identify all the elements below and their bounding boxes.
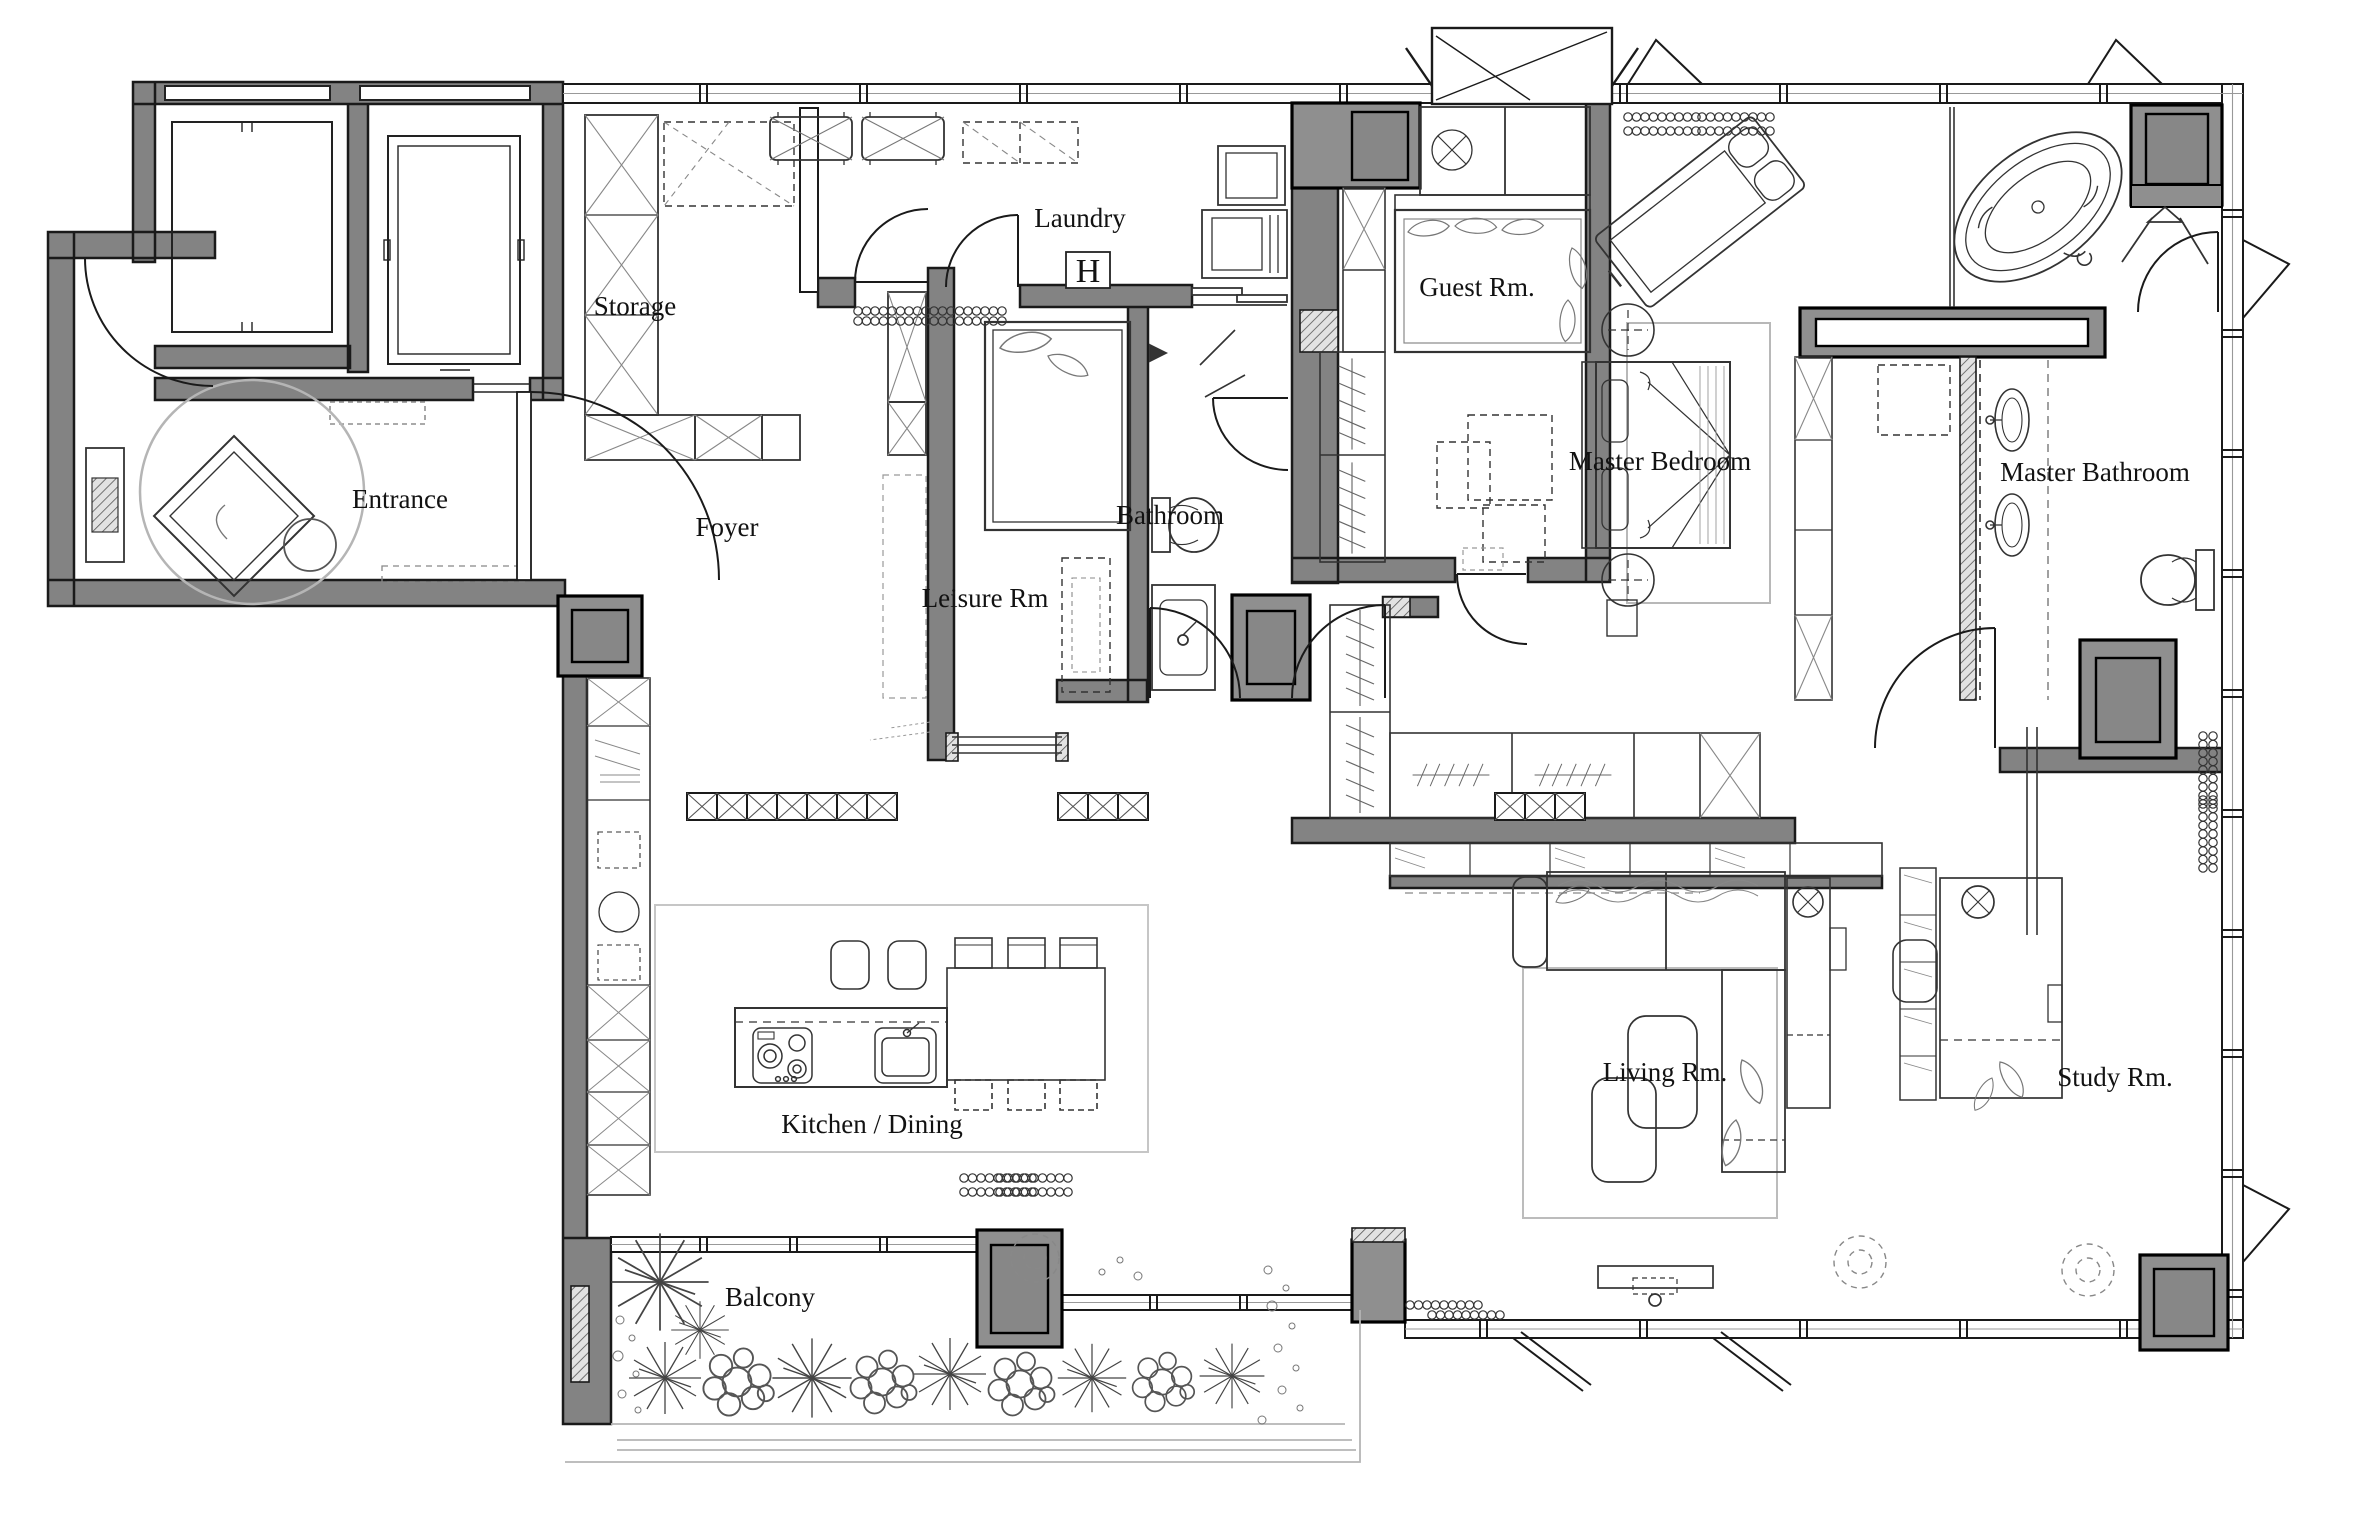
label-guest: Guest Rm. xyxy=(1419,272,1535,302)
structural-walls xyxy=(48,82,2222,1424)
master-bath-door xyxy=(1875,628,1995,748)
stool xyxy=(284,519,336,571)
guest-dashed-tables xyxy=(1437,415,1552,562)
sofa xyxy=(1513,872,1785,1172)
label-study: Study Rm. xyxy=(2057,1062,2173,1092)
bathtub-icon xyxy=(1927,102,2161,326)
coffee-tables xyxy=(1592,1016,1697,1182)
kitchen-tall-cabinets xyxy=(587,678,650,1195)
storage-door xyxy=(855,209,928,282)
master-cabinet-strip xyxy=(1795,357,1832,700)
foyer-door xyxy=(517,392,719,580)
guest-closet xyxy=(1343,188,1385,352)
sofa-side-console xyxy=(1787,878,1846,1108)
vanity-basins xyxy=(1980,360,2048,700)
label-foyer: Foyer xyxy=(696,512,759,542)
storage-room xyxy=(585,115,800,460)
guest-cabinet xyxy=(1420,107,1590,195)
bar-stools xyxy=(831,941,926,989)
tv-icon xyxy=(1598,1266,1713,1306)
ottoman xyxy=(154,436,314,596)
beam-markers xyxy=(687,793,1585,820)
bathroom-door-lower xyxy=(1150,608,1240,698)
kitchen-island xyxy=(735,1008,947,1087)
label-bathroom: Bathroom xyxy=(1116,500,1224,530)
washing-machine-icon xyxy=(1202,210,1287,278)
sideboard xyxy=(86,448,124,562)
bay-window xyxy=(1406,28,1638,104)
desk xyxy=(1940,878,2062,1114)
shower-icon xyxy=(1150,330,1245,397)
round-rug xyxy=(140,380,364,604)
hatched-walls xyxy=(571,310,1976,1382)
label-laundry: Laundry xyxy=(1034,203,1126,233)
label-balcony: Balcony xyxy=(725,1282,815,1312)
laundry-sink xyxy=(1218,146,1285,205)
label-h-symbol: H xyxy=(1076,253,1101,290)
label-master-bathroom: Master Bathroom xyxy=(2000,457,2190,487)
leisure-bed xyxy=(985,322,1130,530)
living-rug xyxy=(1523,968,1777,1218)
guest-door xyxy=(1457,574,1527,644)
study-room xyxy=(1893,727,2062,1114)
label-kitchen-dining: Kitchen / Dining xyxy=(781,1109,962,1139)
label-entrance: Entrance xyxy=(352,484,448,514)
elevator-icon xyxy=(384,136,524,370)
tub-room-door xyxy=(2138,232,2218,312)
corridor-closet xyxy=(1330,605,1390,818)
bookshelf xyxy=(1900,868,1936,1100)
foyer xyxy=(883,292,926,698)
shoe-cabinet xyxy=(888,292,926,455)
bathroom-door-upper xyxy=(1213,398,1288,470)
dining-chairs xyxy=(955,938,1097,1110)
laundry-room xyxy=(770,112,1287,305)
chaise-lounge xyxy=(1587,115,1806,314)
dining-table xyxy=(947,938,1105,1110)
vanity-sink-icon xyxy=(1152,585,1215,690)
entrance-room xyxy=(86,380,528,604)
dryer-icon xyxy=(862,112,944,165)
swirl-decor xyxy=(1011,1234,2114,1296)
balcony xyxy=(565,1233,1360,1462)
floor-plan-canvas: Entrance Foyer Storage Laundry H Leisure… xyxy=(0,0,2362,1525)
label-living: Living Rm. xyxy=(1603,1057,1728,1087)
future-appliance xyxy=(963,122,1078,163)
label-storage: Storage xyxy=(594,291,676,321)
toilet-icon-master xyxy=(2141,550,2214,610)
laundry-door xyxy=(946,215,1018,287)
label-master-bedroom: Master Bedroom xyxy=(1569,446,1751,476)
sliding-door xyxy=(1192,288,1287,305)
label-leisure: Leisure Rm xyxy=(922,583,1049,613)
